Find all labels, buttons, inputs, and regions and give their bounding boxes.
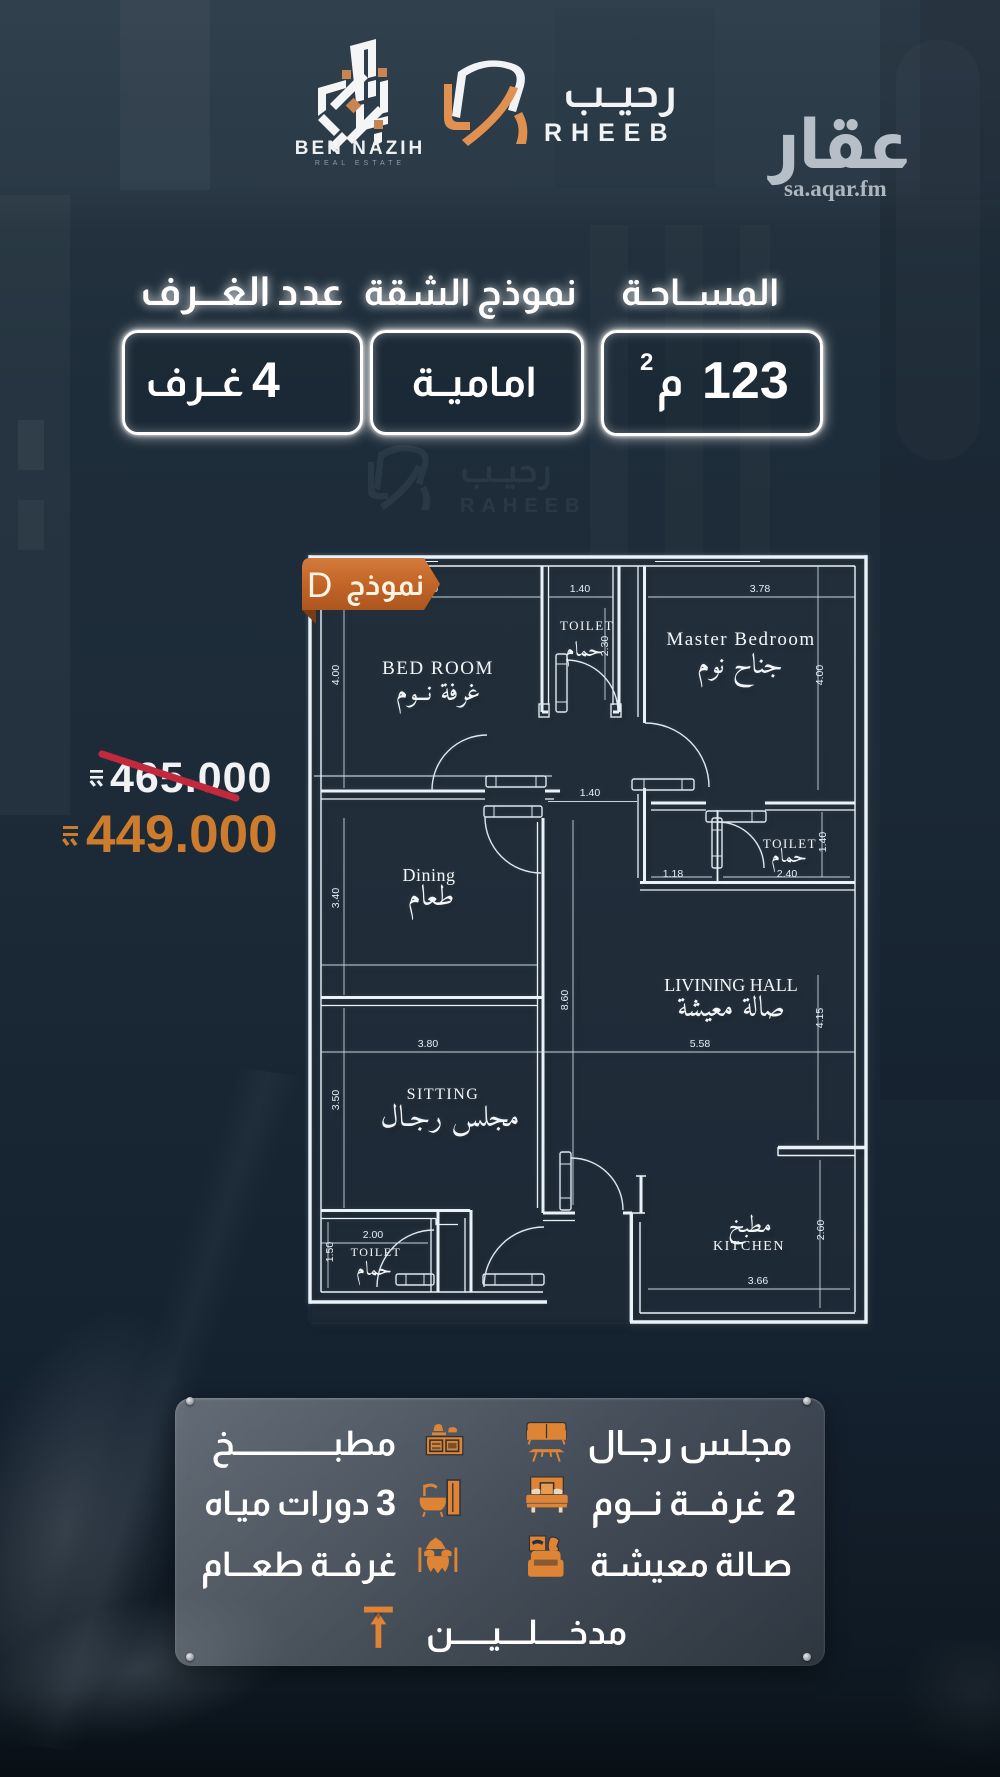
svg-text:D: D	[307, 566, 332, 605]
svg-text:8.60: 8.60	[559, 990, 571, 1011]
svg-text:2.40: 2.40	[777, 868, 798, 880]
svg-text:5.58: 5.58	[690, 1038, 711, 1050]
svg-text:LIVINING HALL: LIVINING HALL	[664, 975, 797, 995]
svg-text:3.66: 3.66	[748, 1275, 769, 1287]
svg-text:1.18: 1.18	[663, 868, 684, 880]
svg-text:TOILET: TOILET	[560, 618, 614, 633]
svg-text:4.15: 4.15	[814, 1008, 826, 1029]
svg-text:TOILET: TOILET	[763, 836, 817, 851]
svg-text:4.00: 4.00	[814, 665, 826, 686]
svg-text:1.40: 1.40	[817, 832, 829, 853]
svg-text:3.50: 3.50	[330, 1090, 342, 1111]
svg-text:3.78: 3.78	[750, 583, 771, 595]
svg-text:TOILET: TOILET	[351, 1245, 402, 1259]
svg-text:2.60: 2.60	[815, 1220, 827, 1241]
svg-text:3.80: 3.80	[418, 1038, 439, 1050]
svg-text:KITCHEN: KITCHEN	[713, 1239, 785, 1254]
svg-text:SITTING: SITTING	[407, 1086, 480, 1103]
svg-text:3.40: 3.40	[330, 888, 342, 909]
svg-text:1.40: 1.40	[580, 787, 601, 799]
svg-text:4.00: 4.00	[330, 665, 342, 686]
svg-text:1.40: 1.40	[570, 583, 591, 595]
svg-text:2: 2	[776, 1482, 796, 1523]
svg-text:2.00: 2.00	[363, 1229, 384, 1241]
svg-text:Dining: Dining	[402, 865, 455, 885]
svg-text:1.50: 1.50	[324, 1242, 336, 1263]
svg-text:3: 3	[376, 1482, 396, 1523]
svg-text:BED ROOM: BED ROOM	[382, 658, 494, 679]
svg-text:Master Bedroom: Master Bedroom	[666, 629, 815, 650]
